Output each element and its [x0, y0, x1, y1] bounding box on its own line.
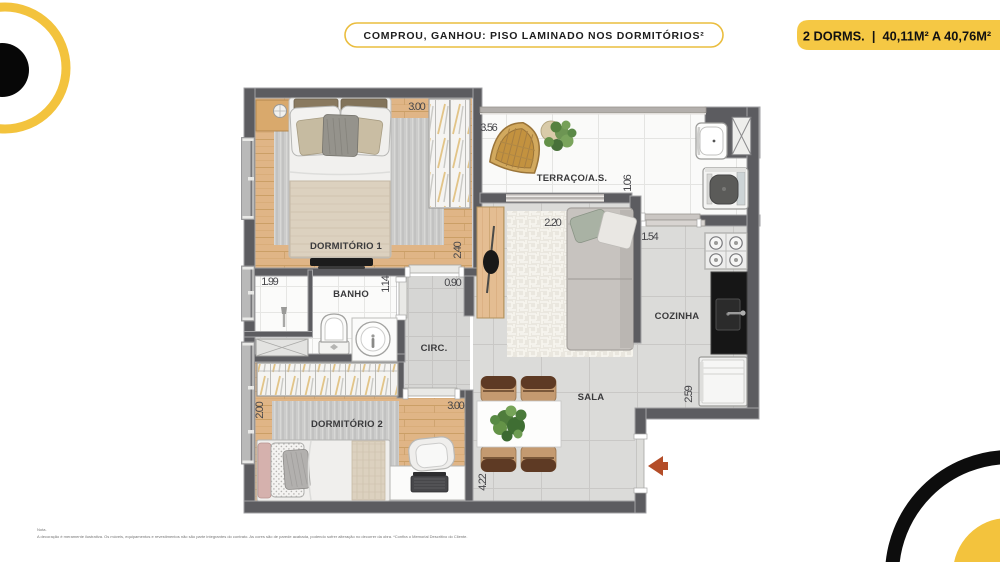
- svg-text:A decoração é meramente ilustr: A decoração é meramente ilustrativa. Os …: [37, 534, 467, 539]
- svg-text:DORMITÓRIO 2: DORMITÓRIO 2: [311, 418, 383, 430]
- svg-text:2.20: 2.20: [544, 217, 562, 229]
- svg-text:2 DORMS. | 40,11M² A 40,76M²: 2 DORMS. | 40,11M² A 40,76M²: [803, 29, 991, 44]
- svg-text:2.00: 2.00: [254, 401, 266, 419]
- svg-text:3.56: 3.56: [480, 122, 498, 134]
- svg-text:COMPROU, GANHOU: PISO LAMINADO: COMPROU, GANHOU: PISO LAMINADO NOS DORMI…: [364, 29, 705, 42]
- svg-text:Nota.: Nota.: [37, 527, 47, 532]
- svg-text:1.14: 1.14: [380, 275, 392, 293]
- svg-text:1.54: 1.54: [641, 231, 659, 243]
- svg-text:CIRC.: CIRC.: [421, 343, 448, 354]
- svg-text:SALA: SALA: [578, 392, 605, 403]
- svg-text:BANHO: BANHO: [333, 289, 369, 300]
- svg-text:3.00: 3.00: [408, 101, 426, 113]
- svg-text:0.90: 0.90: [444, 277, 462, 289]
- svg-text:COZINHA: COZINHA: [655, 311, 700, 322]
- svg-text:4.22: 4.22: [477, 473, 489, 491]
- svg-text:DORMITÓRIO 1: DORMITÓRIO 1: [310, 240, 383, 252]
- svg-text:1.06: 1.06: [622, 174, 634, 192]
- svg-text:2.40: 2.40: [452, 241, 464, 259]
- svg-text:1.99: 1.99: [261, 276, 279, 288]
- svg-text:2.59: 2.59: [683, 385, 695, 403]
- svg-text:3.00: 3.00: [447, 400, 465, 412]
- svg-text:TERRAÇO/A.S.: TERRAÇO/A.S.: [537, 173, 608, 184]
